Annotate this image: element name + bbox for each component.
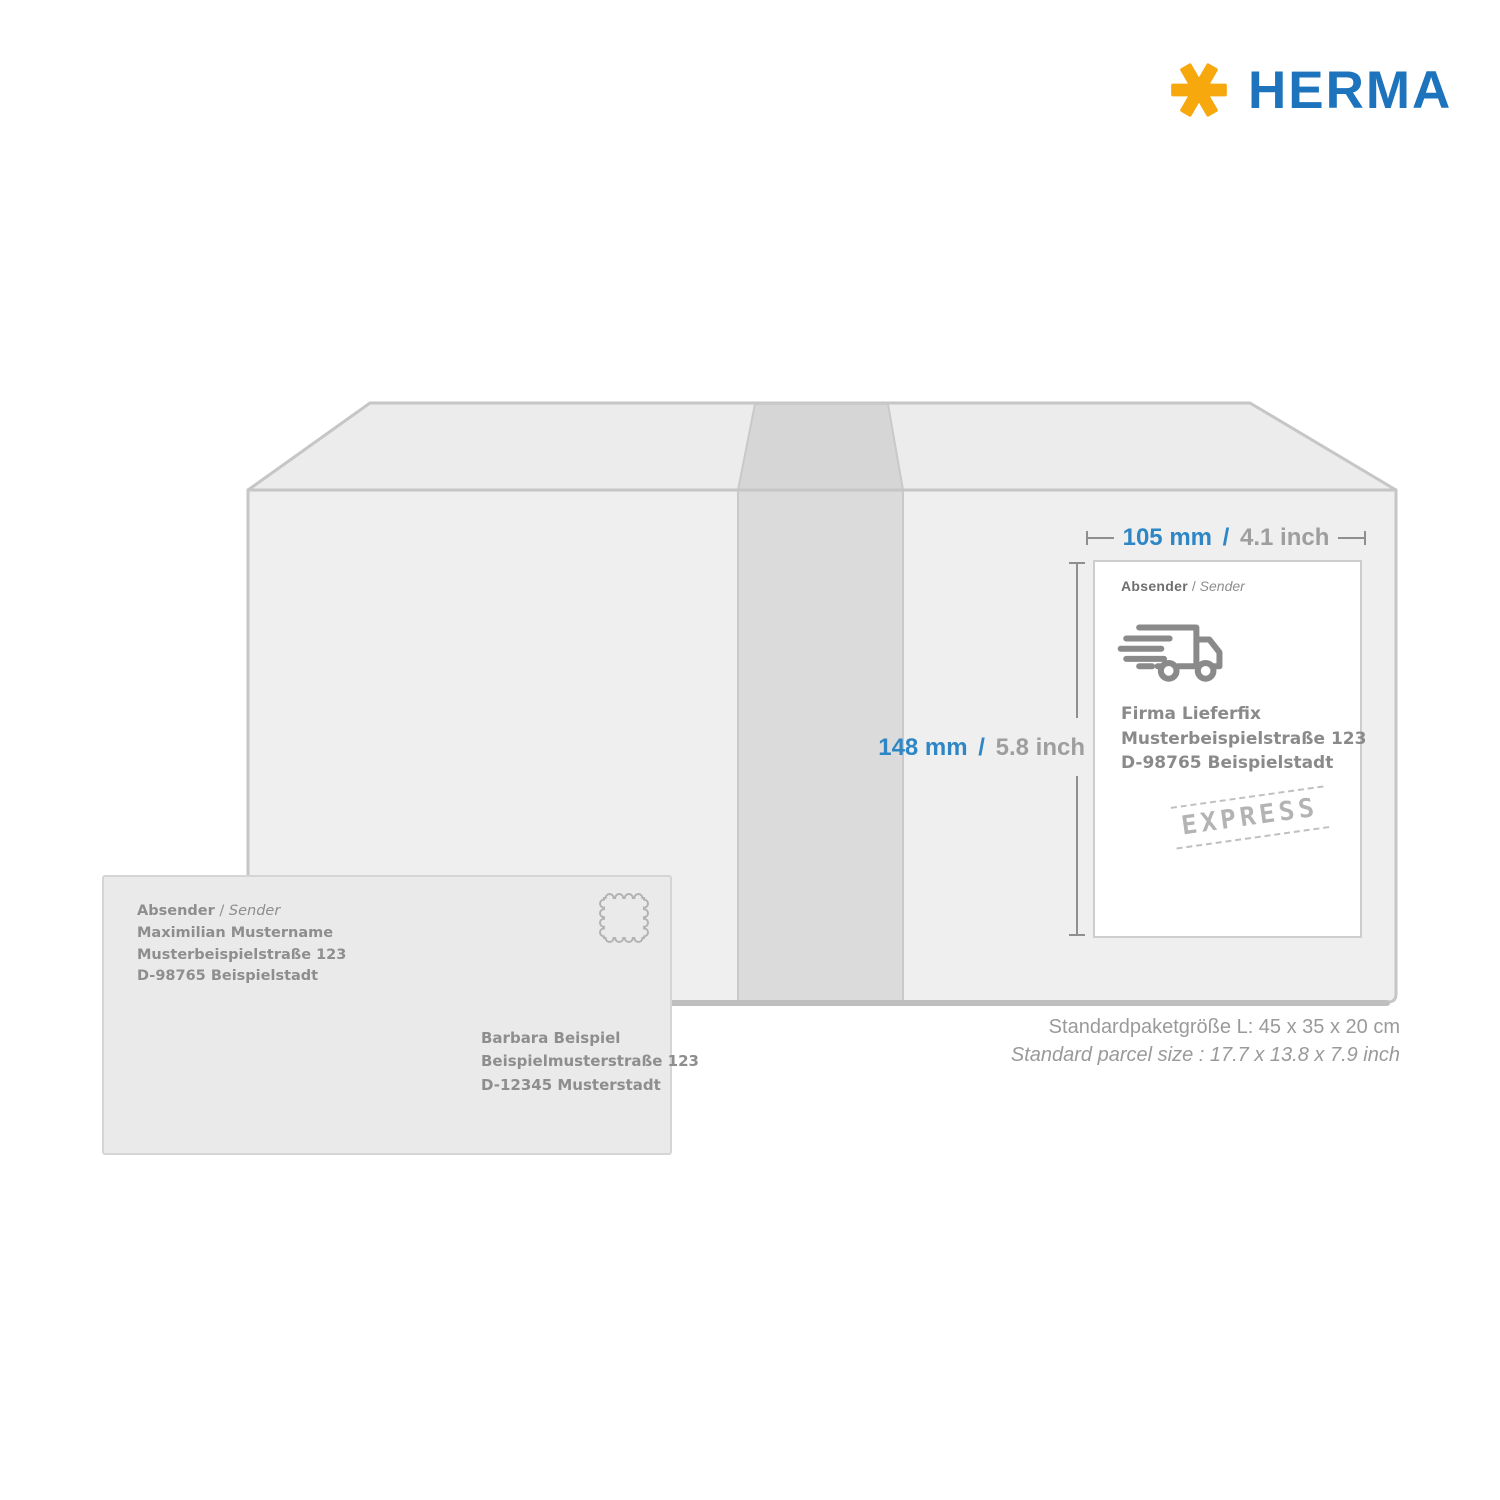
width-imperial-value: 4.1 inch xyxy=(1240,524,1329,551)
label-address-line: D-98765 Beispielstadt xyxy=(1121,751,1366,776)
envelope-recipient-line: D-12345 Musterstadt xyxy=(481,1074,699,1097)
envelope-sender-block: Absender / Sender Maximilian Mustername … xyxy=(137,901,346,988)
envelope-sender-header-de: Absender xyxy=(137,903,215,919)
measure-arrow-right-icon xyxy=(1338,537,1366,539)
height-separator: / xyxy=(974,734,989,761)
width-measurement-text: 105 mm / 4.1 inch xyxy=(1123,524,1330,552)
envelope-sender-line: Musterbeispielstraße 123 xyxy=(137,945,346,967)
herma-asterisk-icon xyxy=(1170,58,1228,122)
express-stamp: EXPRESS xyxy=(1171,786,1329,850)
envelope-recipient-line: Beispielmusterstraße 123 xyxy=(481,1050,699,1073)
envelope-sender-header: Absender / Sender xyxy=(137,901,346,923)
herma-wordmark: HERMA xyxy=(1248,64,1452,117)
envelope-sender-line: Maximilian Mustername xyxy=(137,923,346,945)
height-measurement: 148 mm / 5.8 inch xyxy=(820,734,1085,762)
parcel-size-caption: Standardpaketgröße L: 45 x 35 x 20 cm St… xyxy=(1011,1014,1400,1069)
postage-stamp-icon xyxy=(596,890,652,946)
label-sender-header-separator: / xyxy=(1188,578,1200,594)
label-address-line: Musterbeispielstraße 123 xyxy=(1121,727,1366,752)
width-separator: / xyxy=(1219,524,1234,551)
label-sender-header-en: Sender xyxy=(1200,578,1245,594)
parcel-size-metric: Standardpaketgröße L: 45 x 35 x 20 cm xyxy=(1011,1014,1400,1042)
height-imperial-value: 5.8 inch xyxy=(996,734,1085,761)
envelope-recipient-line: Barbara Beispiel xyxy=(481,1027,699,1050)
label-sender-header: Absender / Sender xyxy=(1121,578,1245,594)
height-measure-line-bottom xyxy=(1076,776,1078,936)
width-metric-value: 105 mm xyxy=(1123,524,1212,551)
envelope-sender-header-separator: / xyxy=(215,903,229,919)
envelope-sender-line: D-98765 Beispielstadt xyxy=(137,966,346,988)
envelope-sender-header-en: Sender xyxy=(229,903,280,919)
parcel-size-imperial: Standard parcel size : 17.7 x 13.8 x 7.9… xyxy=(1011,1042,1400,1070)
herma-logo: HERMA xyxy=(1170,58,1452,122)
envelope: Absender / Sender Maximilian Mustername … xyxy=(102,875,672,1155)
shipping-label: Absender / Sender Firma Lieferfix Muster… xyxy=(1093,560,1362,938)
label-sender-header-de: Absender xyxy=(1121,578,1188,594)
label-address-line: Firma Lieferfix xyxy=(1121,702,1366,727)
tape-top xyxy=(738,404,903,490)
label-recipient-address: Firma Lieferfix Musterbeispielstraße 123… xyxy=(1121,702,1366,776)
envelope-recipient-block: Barbara Beispiel Beispielmusterstraße 12… xyxy=(481,1027,699,1097)
measure-arrow-left-icon xyxy=(1086,537,1114,539)
height-measure-line-top xyxy=(1076,562,1078,718)
herma-product-illustration: HERMA 105 mm / 4.1 inch 148 mm / 5.8 inc… xyxy=(0,0,1500,1500)
delivery-truck-icon xyxy=(1117,616,1237,698)
width-measurement: 105 mm / 4.1 inch xyxy=(1086,522,1366,554)
height-metric-value: 148 mm xyxy=(878,734,967,761)
